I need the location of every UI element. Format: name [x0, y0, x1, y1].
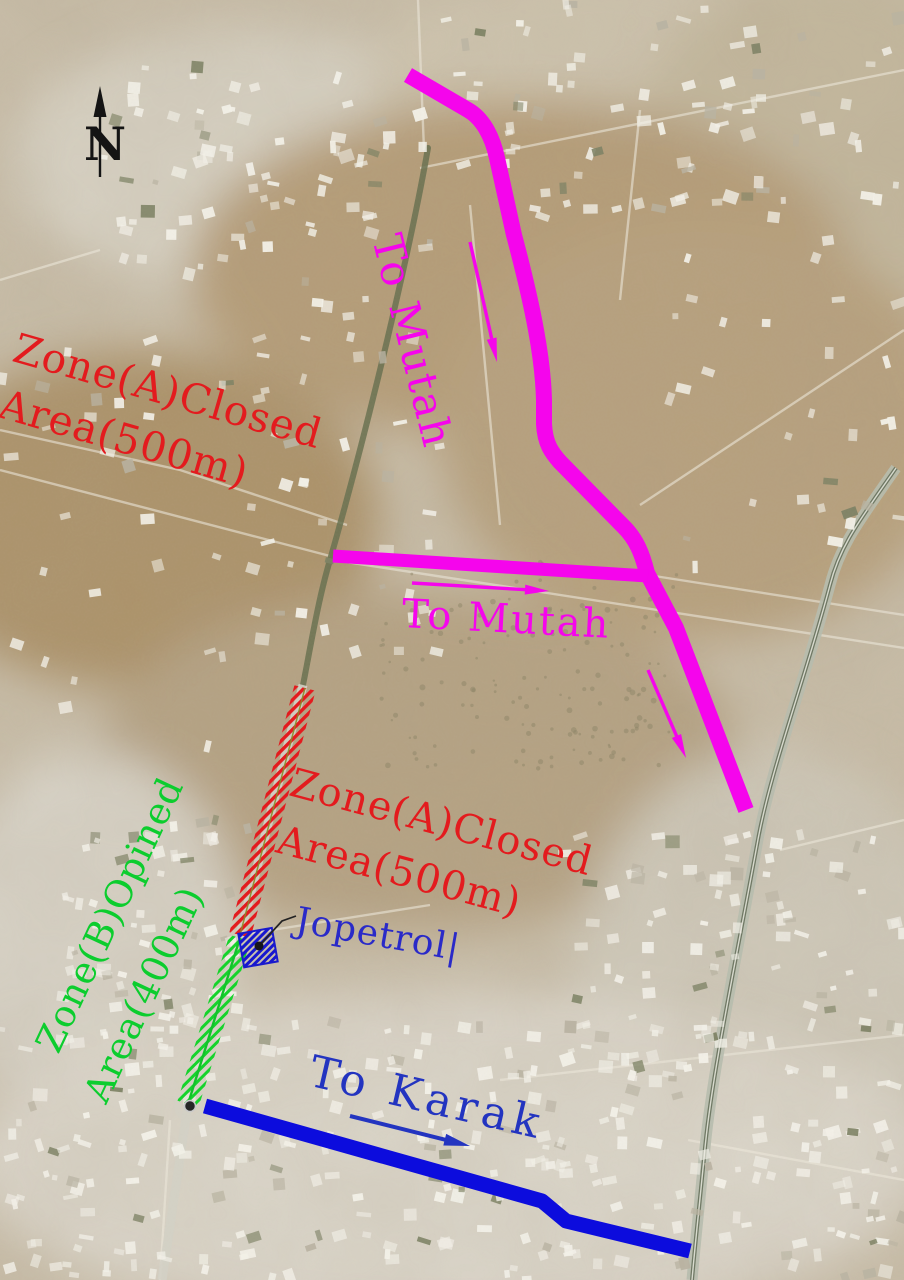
mutah-arrow-upper	[470, 242, 497, 362]
to-mutah-mid-label: To Mutah	[401, 594, 612, 645]
jopetrol-leader-dot	[255, 942, 264, 951]
detour-route-main	[408, 75, 746, 810]
detour-route-branch	[333, 556, 648, 576]
junction-dot	[185, 1101, 196, 1112]
north-label: N	[84, 121, 126, 167]
mutah-arrow-lower	[648, 670, 686, 758]
detour-map: N Zone(A)Closed Area(500m) To Mutah To M…	[0, 0, 904, 1280]
open-zone-hatch	[178, 935, 251, 1108]
